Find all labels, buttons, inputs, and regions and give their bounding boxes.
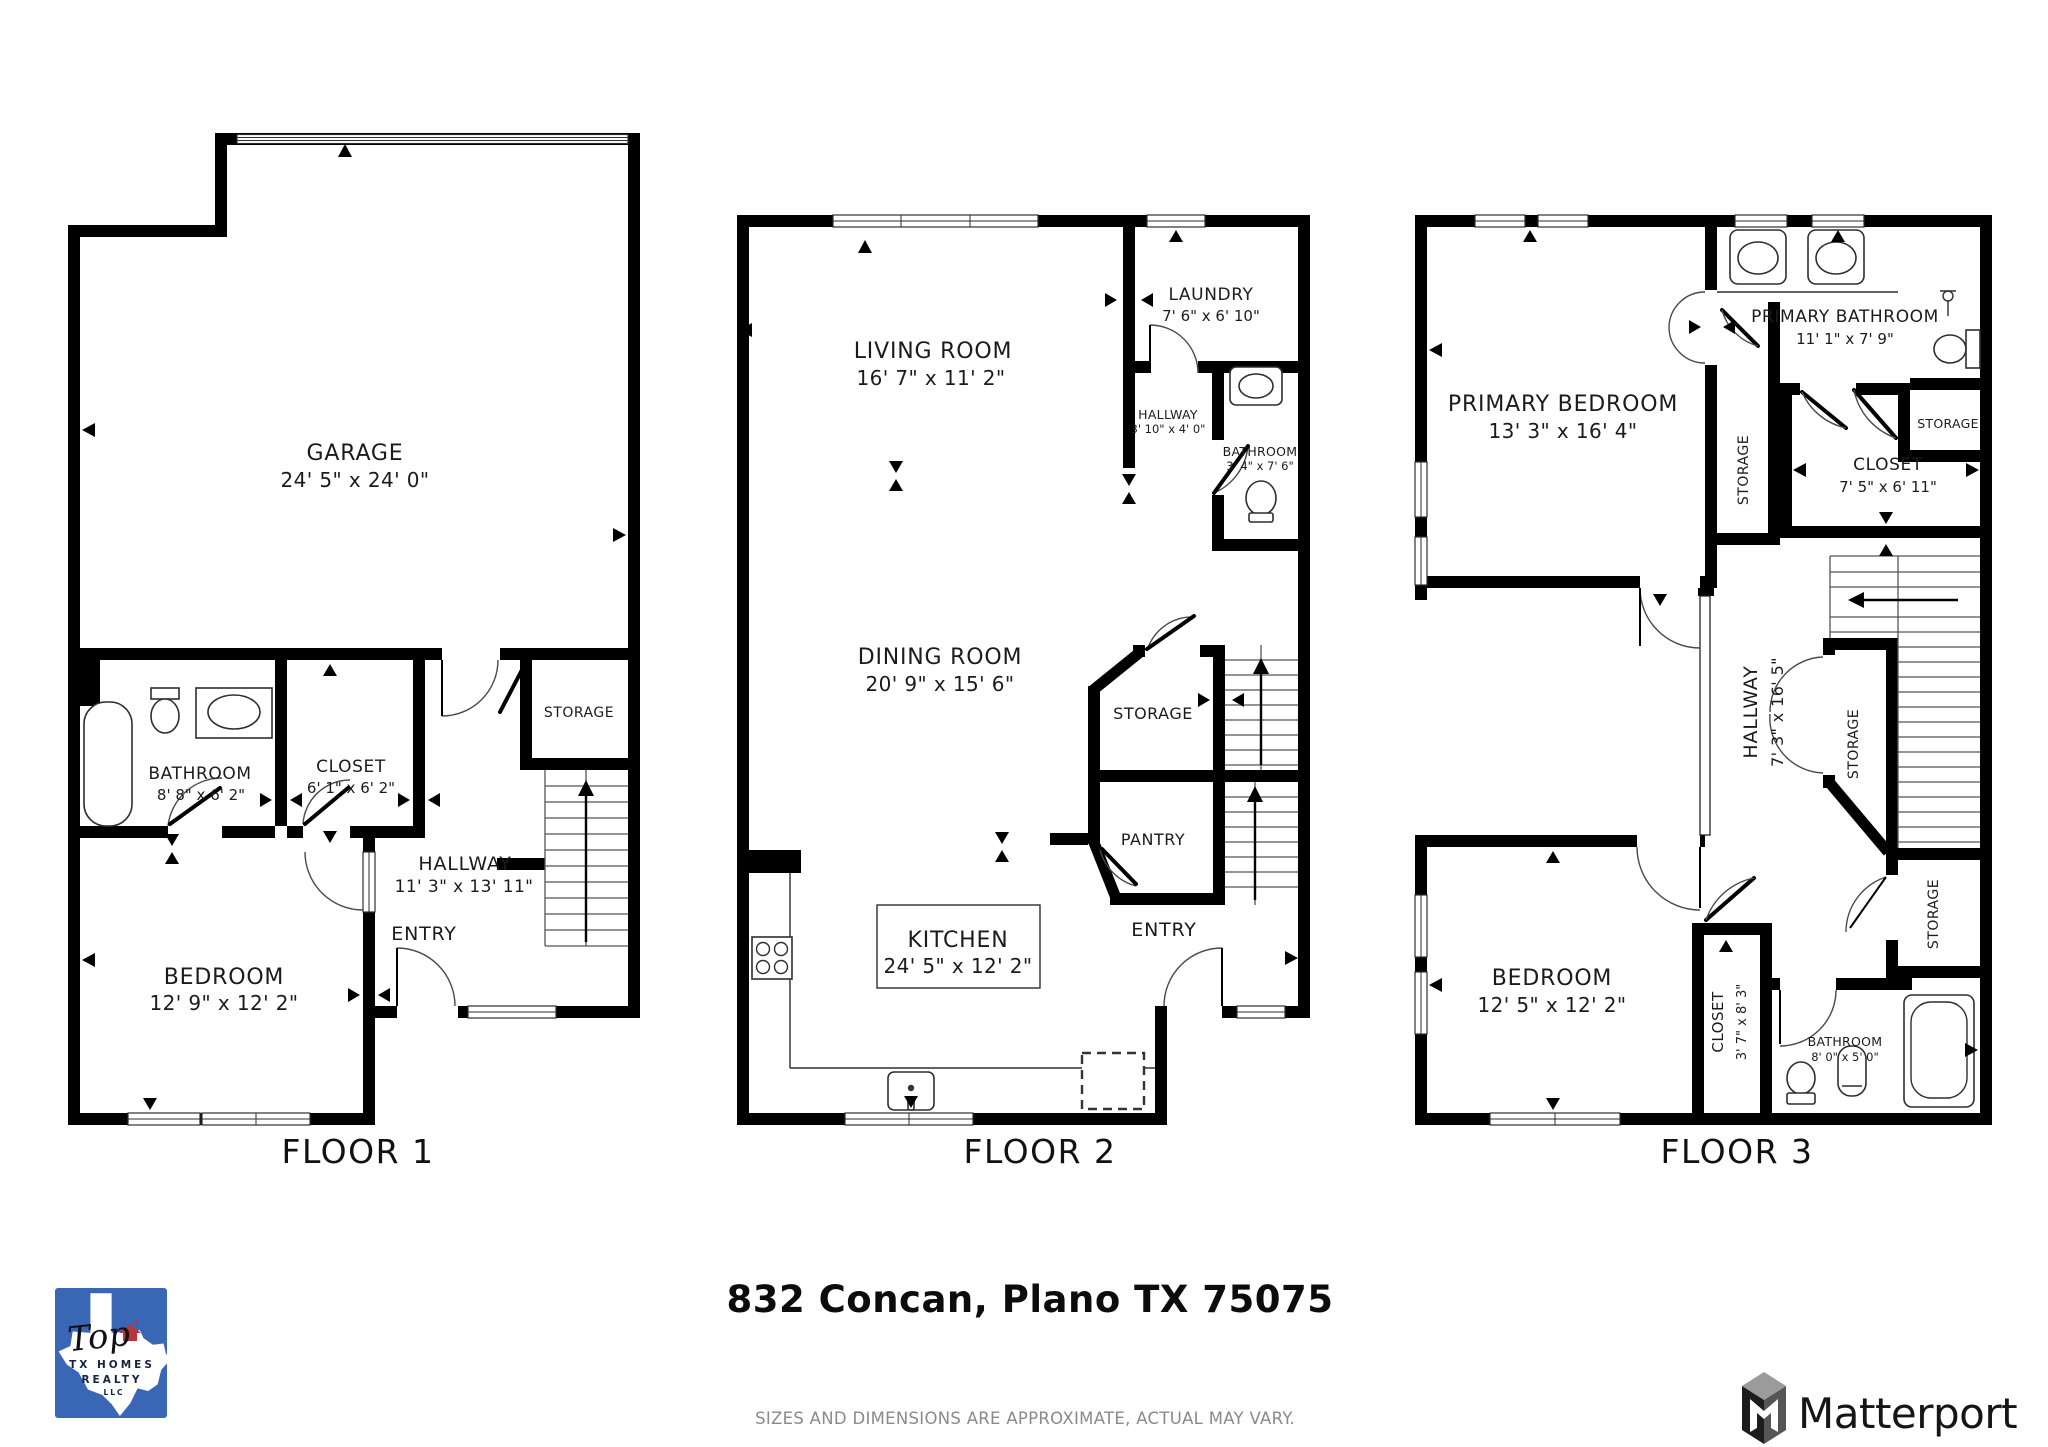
room-label-dining: DINING ROOM <box>858 645 1023 670</box>
room-label-bathroom-3: BATHROOM <box>1808 1034 1883 1049</box>
room-label-hallway-2: HALLWAY <box>1138 407 1198 422</box>
disclaimer-text: SIZES AND DIMENSIONS ARE APPROXIMATE, AC… <box>755 1409 1295 1428</box>
floor-plan-canvas: GARAGE 24' 5" x 24' 0" BATHROOM 8' 8" x … <box>0 0 2048 1447</box>
room-dims-bedroom-1: 12' 9" x 12' 2" <box>149 991 298 1015</box>
floor-3-windows <box>1415 215 1864 1125</box>
room-label-storage-3b: STORAGE <box>1917 416 1979 431</box>
room-label-bedroom-3: BEDROOM <box>1492 966 1612 991</box>
bathtub-icon <box>84 702 132 826</box>
room-label-primary-bedroom: PRIMARY BEDROOM <box>1448 392 1678 417</box>
room-dims-living: 16' 7" x 11' 2" <box>856 366 1005 390</box>
room-label-bathroom-1: BATHROOM <box>148 764 251 784</box>
agency-logo: Top TX HOMES REALTY LLC <box>55 1288 172 1418</box>
room-label-primary-bathroom: PRIMARY BATHROOM <box>1751 307 1939 327</box>
primary-toilet-tank-icon <box>1966 330 1980 368</box>
floor-plan-page: GARAGE 24' 5" x 24' 0" BATHROOM 8' 8" x … <box>0 0 2048 1447</box>
room-dims-dining: 20' 9" x 15' 6" <box>865 672 1014 696</box>
room-dims-closet-3b: 3' 7" x 8' 3" <box>1735 984 1750 1060</box>
property-address: 832 Concan, Plano TX 75075 <box>727 1278 1334 1321</box>
room-dims-laundry: 7' 6" x 6' 10" <box>1162 307 1260 325</box>
room-label-storage-3c: STORAGE <box>1846 709 1862 779</box>
toilet-icon <box>151 699 179 733</box>
room-label-bathroom-2: BATHROOM <box>1223 444 1298 459</box>
matterport-wordmark: Matterport <box>1798 1389 2017 1438</box>
room-label-hallway-1: HALLWAY <box>418 853 511 875</box>
matterport-logo: Matterport <box>1742 1372 2017 1444</box>
room-dims-hallway-1: 11' 3" x 13' 11" <box>395 877 534 897</box>
room-label-entry-1: ENTRY <box>391 923 456 945</box>
agency-line1: TX HOMES <box>69 1359 155 1371</box>
room-dims-closet-3a: 7' 5" x 6' 11" <box>1839 478 1937 496</box>
room-label-entry-2: ENTRY <box>1131 919 1196 941</box>
room-label-storage-3d: STORAGE <box>1926 879 1942 949</box>
toilet-tank-icon <box>151 688 179 699</box>
room-label-bedroom-1: BEDROOM <box>164 965 284 990</box>
room-dims-bedroom-3: 12' 5" x 12' 2" <box>1477 993 1626 1017</box>
room-dims-bathroom-1: 8' 8" x 6' 2" <box>157 786 245 804</box>
matterport-icon <box>1742 1372 1786 1444</box>
footer: 832 Concan, Plano TX 75075 SIZES AND DIM… <box>55 1278 2017 1444</box>
primary-toilet-icon <box>1934 335 1966 363</box>
floor-1-fixtures <box>84 688 272 826</box>
room-dims-hallway-2: 3' 10" x 4' 0" <box>1131 422 1206 436</box>
floor-3-label: FLOOR 3 <box>1660 1132 1813 1171</box>
room-dims-primary-bathroom: 11' 1" x 7' 9" <box>1796 330 1894 348</box>
room-dims-closet-1: 6' 1" x 6' 2" <box>307 779 395 797</box>
agency-line2: REALTY <box>81 1374 142 1386</box>
room-label-laundry: LAUNDRY <box>1168 285 1253 305</box>
room-label-closet-3b: CLOSET <box>1709 991 1727 1053</box>
stove-icon <box>752 937 792 979</box>
floor-1-labels: GARAGE 24' 5" x 24' 0" BATHROOM 8' 8" x … <box>148 441 614 1171</box>
shower-control-icon <box>1940 291 1956 316</box>
room-label-pantry: PANTRY <box>1121 830 1185 849</box>
room-label-kitchen: KITCHEN <box>908 928 1009 953</box>
floor-1-stairs <box>545 770 628 946</box>
room-label-hallway-3: HALLWAY <box>1740 665 1762 758</box>
refrigerator-dashed <box>1082 1053 1144 1109</box>
room-label-storage-1: STORAGE <box>544 705 614 721</box>
room-dims-bathroom-3: 8' 0" x 5' 0" <box>1811 1050 1879 1064</box>
floor-2: LIVING ROOM 16' 7" x 11' 2" LAUNDRY 7' 6… <box>737 215 1310 1171</box>
room-dims-hallway-3: 7' 3" x 16' 5" <box>1768 657 1787 767</box>
toilet3-icon <box>1787 1062 1815 1094</box>
room-label-storage-2: STORAGE <box>1113 704 1193 723</box>
floor-2-fixtures <box>752 367 1282 1110</box>
floor-2-label: FLOOR 2 <box>963 1132 1116 1171</box>
room-dims-primary-bedroom: 13' 3" x 16' 4" <box>1488 419 1637 443</box>
room-label-garage: GARAGE <box>307 441 404 466</box>
hallway-thin-wall <box>1700 596 1710 835</box>
room-dims-garage: 24' 5" x 24' 0" <box>280 468 429 492</box>
floor-1-walls <box>68 133 640 1125</box>
room-label-storage-3a: STORAGE <box>1736 435 1752 505</box>
room-label-closet-3a: CLOSET <box>1853 455 1923 475</box>
floor-3: PRIMARY BEDROOM 13' 3" x 16' 4" PRIMARY … <box>1415 215 1992 1171</box>
room-label-living: LIVING ROOM <box>854 339 1012 364</box>
floor-1-label: FLOOR 1 <box>281 1132 434 1171</box>
room-dims-kitchen: 24' 5" x 12' 2" <box>883 954 1032 978</box>
bath2-toilet-icon <box>1246 481 1276 515</box>
agency-script-text: Top <box>66 1314 132 1360</box>
floor-2-labels: LIVING ROOM 16' 7" x 11' 2" LAUNDRY 7' 6… <box>854 285 1298 1171</box>
room-label-closet-1: CLOSET <box>316 757 386 777</box>
room-dims-bathroom-2: 3' 4" x 7' 6" <box>1226 459 1294 473</box>
agency-line3: LLC <box>103 1388 124 1397</box>
floor-1: GARAGE 24' 5" x 24' 0" BATHROOM 8' 8" x … <box>68 133 640 1171</box>
